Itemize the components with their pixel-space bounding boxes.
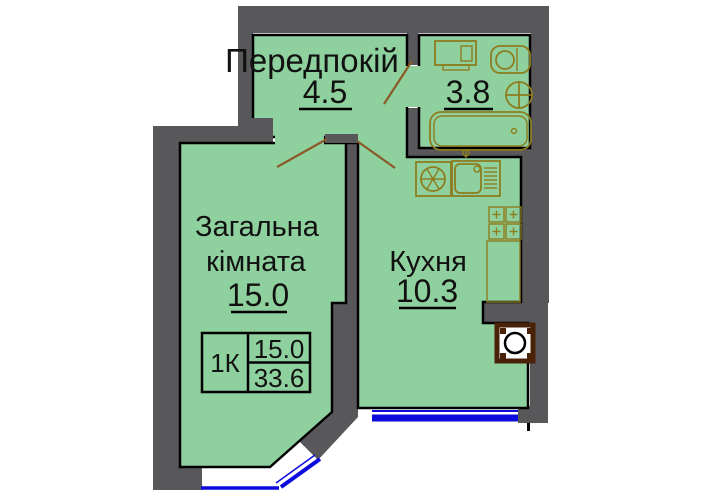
opening-living-door (275, 128, 324, 146)
kitchen-area: 10.3 (396, 273, 458, 309)
wall-living-left (153, 143, 179, 490)
wall-right-kitchen (521, 157, 533, 303)
wall-middle-stub (325, 134, 358, 143)
floor-plan-canvas: Передпокій 4.5 3.8 Загальна кімната 15.0… (0, 0, 707, 500)
washbasin-icon (505, 81, 533, 109)
opening-bathroom-door (405, 66, 422, 107)
wall-bathroom-left-upper (407, 33, 418, 65)
wall-middle-upper (346, 143, 358, 303)
bathroom-area: 3.8 (446, 74, 490, 110)
legend: 1К 15.0 33.6 (202, 333, 310, 393)
wall-living-top-foot (238, 118, 273, 140)
vent-shaft-icon (497, 325, 533, 361)
wall-middle-lower (332, 302, 358, 410)
hallway-area: 4.5 (303, 74, 347, 110)
living-label-line2: кімната (206, 246, 307, 278)
living-area: 15.0 (227, 277, 289, 313)
wall-right-step (483, 302, 548, 323)
wall-bathroom-left-lower (407, 108, 418, 148)
wall-right-upper (531, 33, 549, 303)
legend-apartment-type: 1К (210, 348, 240, 378)
floor-plan: Передпокій 4.5 3.8 Загальна кімната 15.0… (0, 0, 707, 500)
legend-living-area: 15.0 (254, 334, 305, 364)
wall-bottom-left-block (153, 467, 202, 490)
legend-total-area: 33.6 (254, 363, 305, 393)
wall-tick-bottom-right (527, 423, 530, 431)
wall-top (238, 6, 549, 33)
living-label-line1: Загальна (195, 211, 320, 243)
